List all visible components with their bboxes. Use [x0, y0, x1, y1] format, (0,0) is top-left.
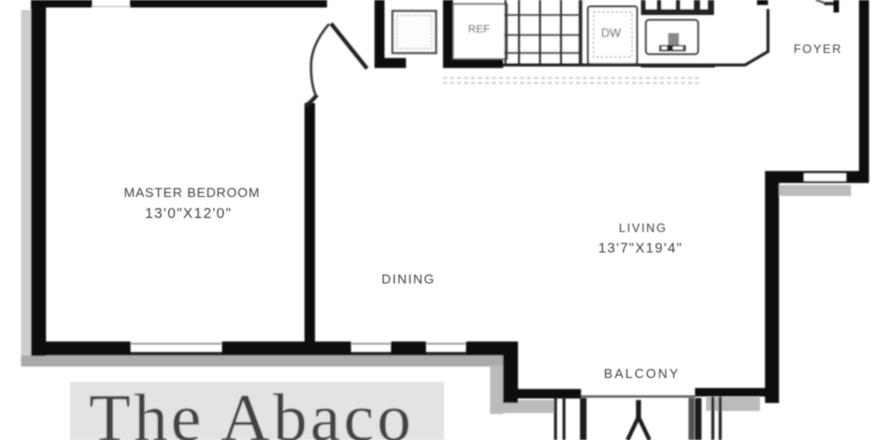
svg-text:The Abaco: The Abaco	[89, 380, 414, 440]
svg-text:13'7"X19'4": 13'7"X19'4"	[598, 240, 683, 256]
svg-text:DINING: DINING	[382, 272, 436, 287]
svg-text:LIVING: LIVING	[619, 221, 667, 235]
svg-text:FOYER: FOYER	[794, 42, 843, 56]
svg-text:MASTER BEDROOM: MASTER BEDROOM	[124, 185, 260, 200]
svg-text:13'0"X12'0": 13'0"X12'0"	[145, 206, 232, 222]
svg-text:BALCONY: BALCONY	[604, 366, 680, 381]
svg-text:REF: REF	[468, 24, 490, 36]
svg-text:DW: DW	[601, 26, 622, 40]
